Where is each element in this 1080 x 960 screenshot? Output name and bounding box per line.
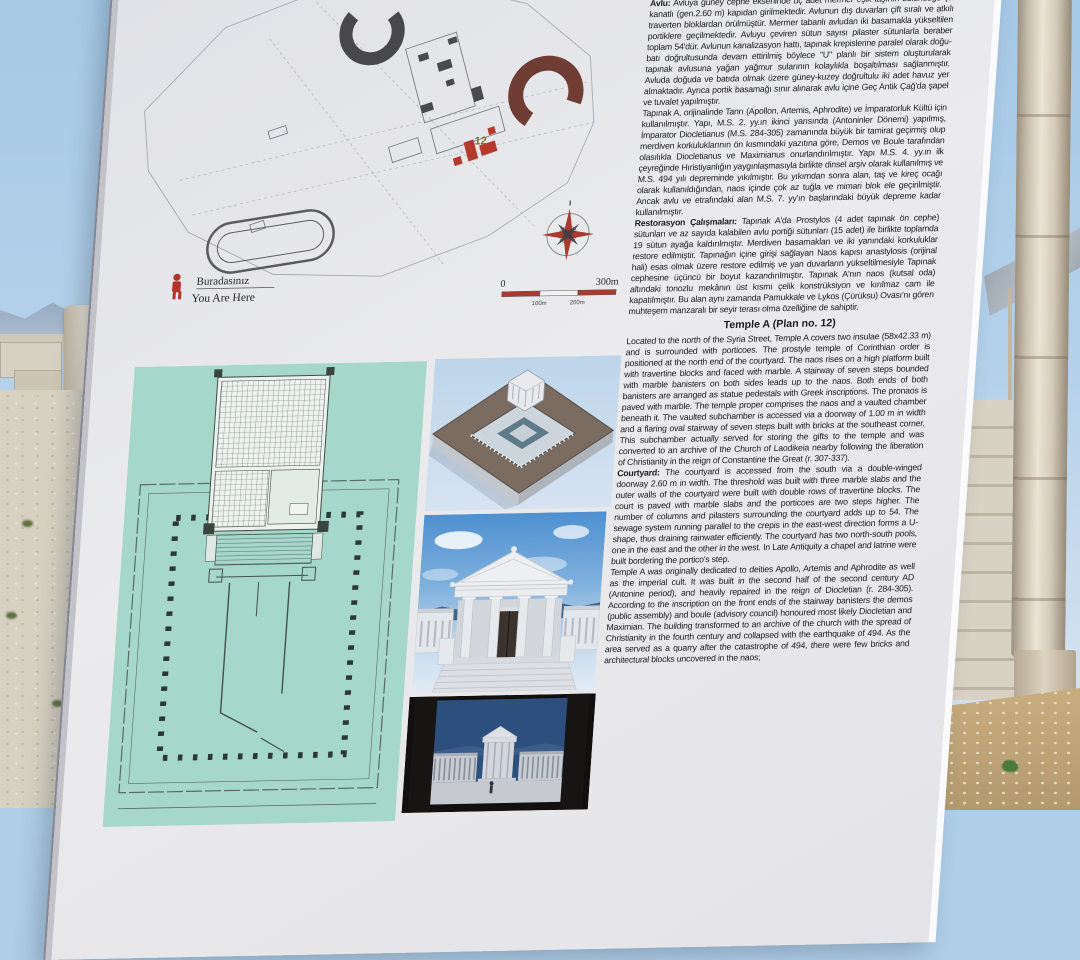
restorasyon-lead: Restorasyon Çalışmaları: — [634, 216, 737, 228]
tapinak-text: Tapınak A, orijinalinde Tanrı (Apollon, … — [635, 102, 947, 217]
street-grid-dashed — [173, 0, 602, 270]
english-paragraph-courtyard: Courtyard: The courtyard is accessed fro… — [611, 462, 922, 567]
scale-mid2: 200m — [569, 300, 584, 306]
theatre-plan-red — [504, 52, 588, 134]
located-text: Located to the north of the Syria Street… — [618, 330, 932, 467]
courtyard-lead: Courtyard: — [617, 467, 660, 478]
shrub — [6, 612, 17, 619]
temple-plan-drawing — [201, 367, 340, 566]
rendering-temple-facade — [412, 511, 607, 693]
dedication-text: Temple A was originally dedicated to dei… — [604, 561, 915, 665]
banister-pedestal-right — [559, 636, 576, 662]
courtyard-text: The courtyard is accessed from the south… — [611, 462, 922, 566]
turkish-paragraph-avlu: Avlu: Avluya güney cephe ekseninde üç ad… — [643, 0, 955, 108]
portico-right — [518, 751, 568, 781]
site-plan-map: 12 Buradasınız You Are Here 0 30 — [108, 0, 654, 350]
rendering-courtyard-view — [402, 693, 596, 813]
avlu-lead: Avlu: — [650, 0, 671, 8]
english-paragraph-located: Located to the north of the Syria Street… — [618, 330, 932, 468]
you-are-here-marker: Buradasınız You Are Here — [171, 272, 275, 306]
you-are-here-label-en: You Are Here — [191, 292, 255, 305]
you-are-here-label-tr: Buradasınız — [196, 275, 250, 288]
plan-number-label: 12 — [474, 135, 487, 147]
avlu-text: Avluya güney cephe ekseninde üç adet mer… — [643, 0, 955, 107]
theatre-plan-dark — [336, 0, 409, 69]
scale-mid1: 100m — [531, 301, 546, 307]
scale-end: 300m — [595, 276, 619, 287]
you-are-here-icon — [171, 274, 182, 300]
banister-pedestal-left — [438, 638, 455, 664]
city-boundary-outline — [133, 0, 604, 281]
stadium-plan — [206, 207, 336, 276]
scale-zero: 0 — [500, 279, 506, 290]
map-scale-bar: 0 300m 100m 200m — [499, 276, 619, 307]
turkish-paragraph-restorasyon: Restorasyon Çalışmaları: Tapınak A'da Pr… — [628, 212, 939, 317]
temple-stairs-plan — [215, 533, 313, 565]
marble-column — [1011, 0, 1072, 658]
rendering-aerial-courtyard — [425, 355, 622, 511]
courtyard-pavement — [426, 780, 566, 805]
english-paragraph-dedication: Temple A was originally dedicated to dei… — [604, 561, 915, 666]
plant — [1002, 760, 1018, 772]
sign-text-column: birlikte, dinsel arşiv odası olarak işle… — [604, 0, 956, 666]
turkish-paragraph-tapinak: Tapınak A, orijinalinde Tanrı (Apollon, … — [635, 102, 947, 218]
information-sign-board: 12 Buradasınız You Are Here 0 30 — [45, 0, 1006, 960]
portico-left — [430, 753, 478, 783]
shrub — [52, 700, 63, 707]
restorasyon-text: Tapınak A'da Prostylos (4 adet tapınak ö… — [628, 212, 939, 316]
stairway — [432, 662, 578, 693]
shrub — [22, 520, 33, 527]
compass-rose-icon — [540, 200, 596, 261]
architectural-plan-panel — [103, 361, 428, 827]
